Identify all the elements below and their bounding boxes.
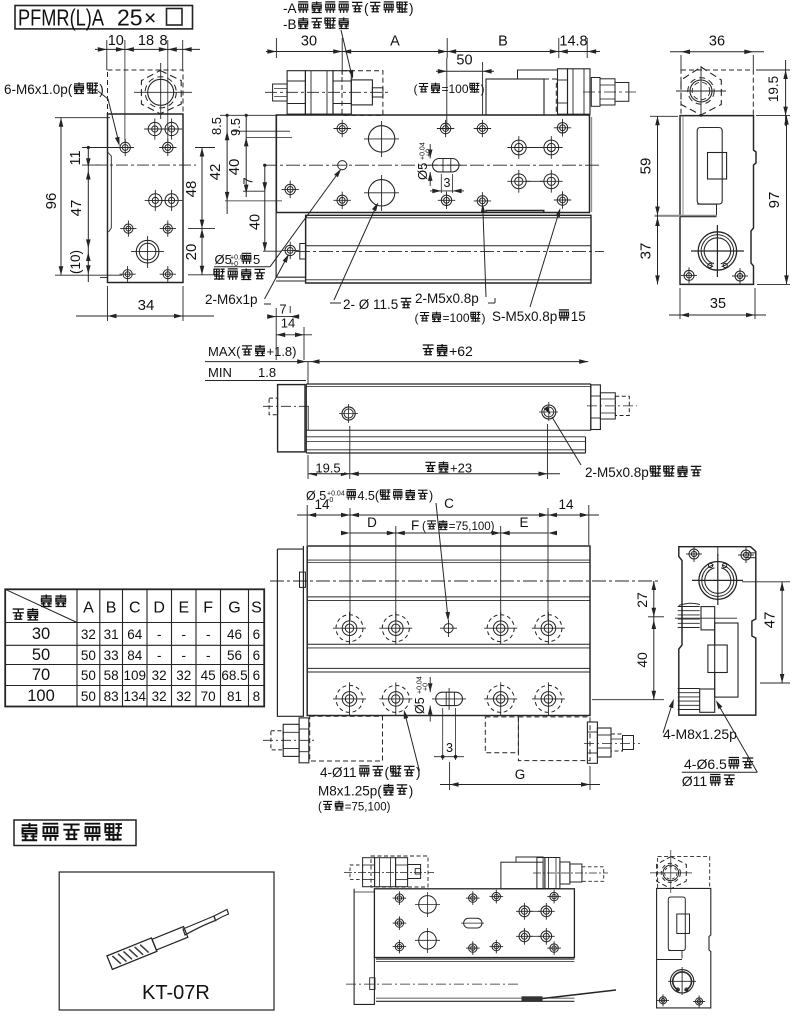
svg-text:Ø11: Ø11 <box>682 773 708 789</box>
svg-text:100: 100 <box>27 687 55 705</box>
svg-text:KT-07R: KT-07R <box>142 982 210 1004</box>
svg-text:50: 50 <box>81 668 96 683</box>
svg-text:E: E <box>519 515 528 530</box>
svg-text:=75,100): =75,100) <box>449 521 495 533</box>
svg-text:+23: +23 <box>450 461 472 476</box>
svg-text:64: 64 <box>127 627 143 642</box>
svg-text:50: 50 <box>81 648 96 663</box>
svg-text:47: 47 <box>762 612 779 629</box>
svg-text:(: ( <box>318 802 322 814</box>
svg-text:Ø5: Ø5 <box>413 697 427 714</box>
svg-text:1.8: 1.8 <box>258 365 276 380</box>
svg-text:45: 45 <box>201 668 216 683</box>
svg-text:B: B <box>106 600 117 617</box>
svg-text:A: A <box>83 600 94 617</box>
svg-text:18: 18 <box>138 33 154 49</box>
svg-text:30: 30 <box>301 34 317 50</box>
svg-text:5: 5 <box>253 252 260 267</box>
svg-text:=75,100): =75,100) <box>345 802 391 814</box>
svg-text:30: 30 <box>32 625 50 643</box>
svg-text:58: 58 <box>104 668 119 683</box>
svg-text:6-M6x1.0p(: 6-M6x1.0p( <box>4 82 73 97</box>
svg-text:25: 25 <box>117 5 143 31</box>
svg-text:46: 46 <box>227 627 242 642</box>
svg-text:9.5: 9.5 <box>228 118 243 136</box>
svg-text:4-Ø11: 4-Ø11 <box>320 765 357 780</box>
svg-text:8.5: 8.5 <box>209 117 224 135</box>
svg-text:15: 15 <box>571 309 586 324</box>
svg-text:6: 6 <box>253 627 261 642</box>
svg-text:): ) <box>409 784 414 799</box>
svg-text:A: A <box>390 34 400 50</box>
svg-text:8: 8 <box>159 33 167 49</box>
svg-text:F: F <box>203 600 213 617</box>
svg-text:47: 47 <box>68 200 85 217</box>
svg-text:2- Ø 11.5: 2- Ø 11.5 <box>343 297 398 312</box>
svg-text:19.5: 19.5 <box>315 461 340 476</box>
svg-text:-: - <box>157 648 162 663</box>
svg-text:50: 50 <box>32 646 50 664</box>
svg-text:2-M5x0.8p: 2-M5x0.8p <box>415 291 479 306</box>
svg-text:+1.8): +1.8) <box>267 344 297 359</box>
svg-text:): ) <box>409 1 414 16</box>
svg-text:=100: =100 <box>442 82 469 96</box>
svg-text:34: 34 <box>138 297 155 314</box>
svg-text:F: F <box>411 518 419 533</box>
svg-text:50: 50 <box>456 53 472 69</box>
svg-text:C: C <box>444 496 454 511</box>
svg-text:): ) <box>429 489 433 503</box>
svg-text:96: 96 <box>43 193 60 210</box>
svg-text:36: 36 <box>709 34 725 50</box>
svg-text:E: E <box>178 600 189 617</box>
svg-text:M8x1.25p(: M8x1.25p( <box>318 784 382 799</box>
svg-text:3: 3 <box>444 176 451 190</box>
svg-text:14.8: 14.8 <box>559 34 587 50</box>
svg-text:48: 48 <box>183 181 200 198</box>
svg-text:4-Ø6.5: 4-Ø6.5 <box>684 756 727 772</box>
svg-text:32: 32 <box>176 689 191 704</box>
svg-text:S: S <box>251 600 262 617</box>
svg-text:-: - <box>182 627 187 642</box>
svg-text:32: 32 <box>152 689 167 704</box>
svg-text:134: 134 <box>124 689 147 704</box>
svg-text:32: 32 <box>176 668 191 683</box>
svg-text:20: 20 <box>183 244 200 261</box>
svg-text:2-M6x1p: 2-M6x1p <box>205 292 258 307</box>
svg-text:97: 97 <box>766 192 783 209</box>
svg-text:59: 59 <box>638 158 655 175</box>
svg-text:C: C <box>129 600 141 617</box>
svg-text:31: 31 <box>104 627 119 642</box>
svg-text:4.5(: 4.5( <box>358 489 380 503</box>
svg-text:(: ( <box>414 82 418 96</box>
svg-text:-: - <box>206 627 211 642</box>
svg-text:): ) <box>481 82 485 96</box>
svg-text:-B: -B <box>283 17 297 32</box>
svg-text:40: 40 <box>634 652 650 668</box>
svg-text:G: G <box>515 767 526 782</box>
svg-text:-: - <box>182 648 187 663</box>
svg-text:-: - <box>157 627 162 642</box>
svg-text:40: 40 <box>248 214 264 230</box>
svg-text:4-M8x1.25p: 4-M8x1.25p <box>663 726 737 742</box>
svg-text:7: 7 <box>241 177 256 184</box>
svg-text:33: 33 <box>104 648 119 663</box>
svg-text:(: ( <box>415 311 419 325</box>
svg-text:3: 3 <box>446 741 453 755</box>
svg-text:37: 37 <box>638 243 655 260</box>
svg-text:27: 27 <box>634 592 650 608</box>
svg-text:19.5: 19.5 <box>766 76 781 102</box>
svg-text:7: 7 <box>279 302 286 317</box>
svg-text:8: 8 <box>253 689 261 704</box>
svg-text:D: D <box>367 515 377 530</box>
svg-text:35: 35 <box>710 296 726 312</box>
svg-text:G: G <box>228 600 240 617</box>
svg-text:81: 81 <box>227 689 242 704</box>
svg-text:84: 84 <box>127 648 143 663</box>
svg-text:109: 109 <box>124 668 147 683</box>
svg-text:6: 6 <box>253 668 261 683</box>
svg-text:=100: =100 <box>443 311 470 325</box>
svg-text:Ø5: Ø5 <box>415 163 430 180</box>
svg-text:6: 6 <box>253 648 261 663</box>
svg-text:MIN: MIN <box>208 365 232 380</box>
svg-text:): ) <box>482 311 486 325</box>
svg-text:(10): (10) <box>68 250 83 274</box>
svg-text:×: × <box>144 7 156 30</box>
svg-text:MAX(: MAX( <box>208 344 241 359</box>
svg-text:+62: +62 <box>449 343 473 359</box>
svg-text:-A: -A <box>283 1 297 16</box>
svg-text:10: 10 <box>108 33 124 49</box>
svg-text:50: 50 <box>81 689 96 704</box>
svg-text:32: 32 <box>152 668 167 683</box>
svg-text:83: 83 <box>104 689 119 704</box>
svg-text:(: ( <box>422 521 426 533</box>
svg-text:40: 40 <box>226 159 243 176</box>
svg-text:PFMR(L)A: PFMR(L)A <box>18 5 105 31</box>
svg-text:70: 70 <box>201 689 216 704</box>
svg-text:(: ( <box>385 765 390 780</box>
svg-text:32: 32 <box>81 627 96 642</box>
svg-text:56: 56 <box>227 648 242 663</box>
svg-text:14: 14 <box>314 497 330 512</box>
svg-text:D: D <box>153 600 165 617</box>
svg-text:2-M5x0.8p: 2-M5x0.8p <box>585 465 649 480</box>
svg-text:42: 42 <box>207 164 224 181</box>
svg-text:11: 11 <box>68 150 84 165</box>
svg-text:B: B <box>498 34 508 50</box>
svg-text:S-M5x0.8p: S-M5x0.8p <box>492 309 557 324</box>
svg-text:-: - <box>206 648 211 663</box>
svg-text:(: ( <box>364 1 369 16</box>
svg-text:68.5: 68.5 <box>221 668 247 683</box>
svg-text:70: 70 <box>32 666 50 684</box>
svg-text:14: 14 <box>558 497 574 512</box>
svg-text:14: 14 <box>281 316 295 331</box>
